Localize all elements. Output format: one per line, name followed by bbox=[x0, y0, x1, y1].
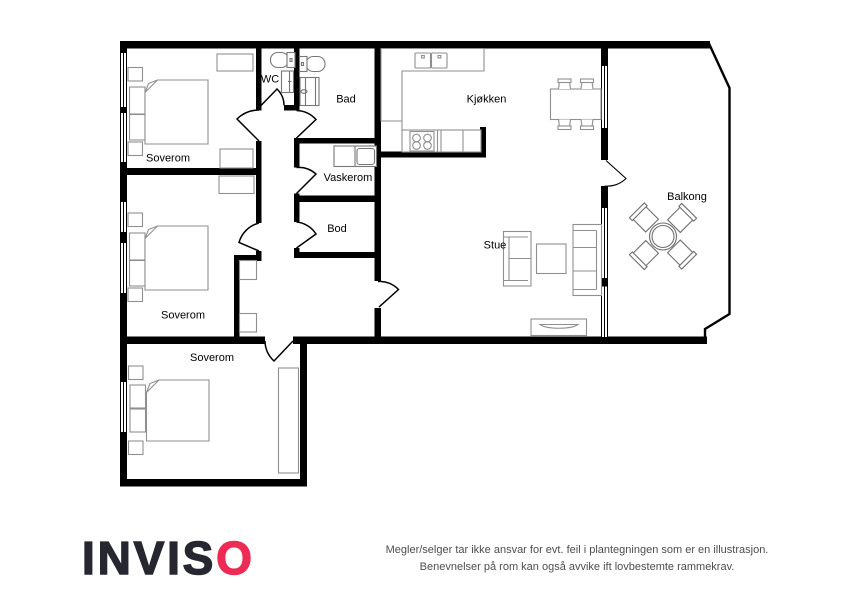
svg-text:Stue: Stue bbox=[484, 240, 507, 252]
svg-text:WC: WC bbox=[261, 74, 279, 86]
svg-text:Balkong: Balkong bbox=[667, 191, 707, 203]
svg-text:Bod: Bod bbox=[327, 223, 347, 235]
svg-text:Soverom: Soverom bbox=[190, 352, 234, 364]
svg-text:Kjøkken: Kjøkken bbox=[467, 94, 507, 106]
svg-text:Bad: Bad bbox=[336, 94, 356, 106]
svg-text:Soverom: Soverom bbox=[146, 153, 190, 165]
svg-text:Soverom: Soverom bbox=[161, 310, 205, 322]
svg-text:Vaskerom: Vaskerom bbox=[324, 172, 373, 184]
